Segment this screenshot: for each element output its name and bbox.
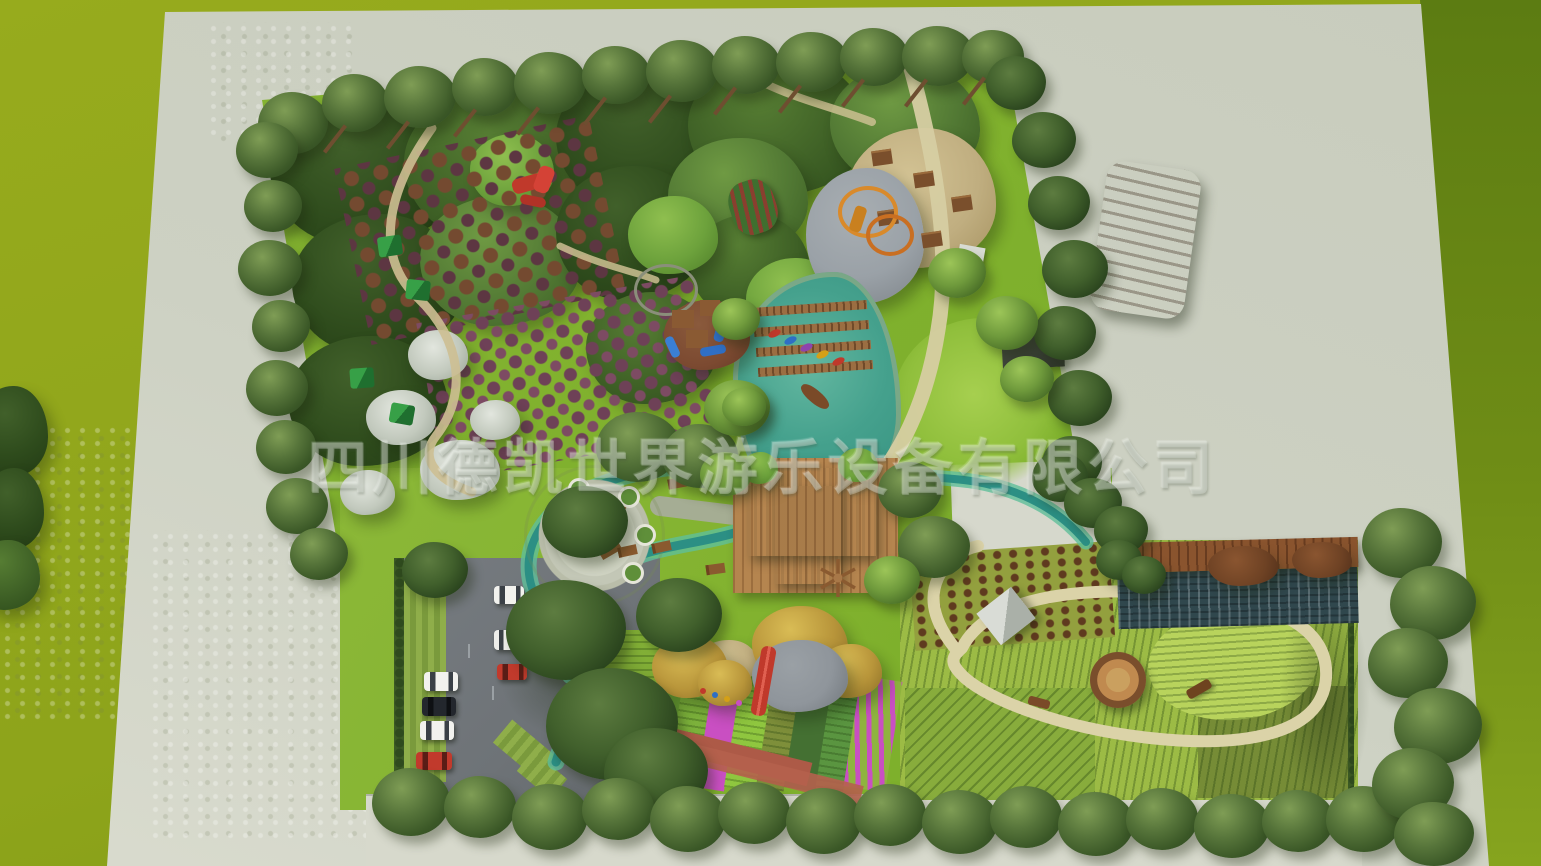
picnic-table [951, 195, 973, 213]
street-lamp [468, 644, 470, 658]
tree [452, 58, 518, 116]
tree [372, 768, 450, 836]
tree [1012, 112, 1076, 168]
tree [290, 528, 348, 580]
tree [786, 788, 862, 854]
round-gazebo [1090, 652, 1146, 708]
tree [718, 782, 790, 844]
tree [1048, 370, 1112, 426]
car-red [416, 752, 452, 770]
camp-tent [405, 279, 431, 301]
car-white [424, 672, 458, 691]
tree [1028, 176, 1090, 230]
tree [1000, 356, 1054, 402]
tree [402, 542, 468, 598]
car-red [497, 664, 527, 680]
climbing-net-arc [866, 214, 914, 256]
tree [322, 74, 388, 132]
car-black [422, 697, 456, 716]
bunting-dot [724, 696, 730, 702]
tree [246, 360, 308, 416]
tree [582, 46, 650, 104]
autumn-canopy [1208, 546, 1278, 586]
picnic-table [913, 171, 935, 189]
tree [1262, 790, 1334, 852]
tree [444, 776, 516, 838]
tree [384, 66, 456, 128]
tree [1058, 792, 1134, 856]
picnic-table [871, 149, 893, 167]
tree [650, 786, 726, 852]
tree [244, 180, 302, 232]
tree [1126, 788, 1198, 850]
tree [928, 248, 986, 298]
autumn-canopy [1292, 542, 1352, 578]
tree [582, 778, 654, 840]
tree [236, 122, 298, 178]
bunting-dot [736, 700, 742, 706]
tree [252, 300, 310, 352]
tree [986, 56, 1046, 110]
tree [238, 240, 302, 296]
aerial-park-render: 四川德凯世界游乐设备有限公司 [0, 0, 1541, 866]
tree [864, 556, 920, 604]
car-white [420, 721, 454, 740]
tree [506, 580, 626, 680]
tree [512, 784, 588, 850]
plaza-link-path [660, 506, 742, 516]
watermark-text: 四川德凯世界游乐设备有限公司 [308, 420, 1268, 507]
tree [840, 28, 908, 86]
plaza-planter [622, 562, 644, 584]
tree [990, 786, 1062, 848]
tree [712, 36, 780, 94]
tree [636, 578, 722, 652]
tree [256, 420, 316, 474]
picnic-table [921, 231, 943, 249]
playset-platform [672, 310, 694, 328]
tree [646, 40, 718, 102]
tree [1122, 556, 1166, 594]
tree [1194, 794, 1270, 858]
camp-tent [377, 234, 404, 257]
playset-platform [686, 330, 708, 348]
street-lamp [492, 686, 494, 700]
tree [1034, 306, 1096, 360]
tree [922, 790, 998, 854]
tree [976, 296, 1038, 350]
windmill-feature [816, 556, 860, 600]
camp-tent [349, 367, 374, 389]
rope-ring-feature [634, 264, 698, 316]
tree [712, 298, 760, 340]
bunting-dot [712, 692, 718, 698]
bunting-dot [700, 688, 706, 694]
windmill-hub [834, 574, 843, 583]
tree [514, 52, 586, 114]
tree [776, 32, 848, 92]
tree [854, 784, 926, 846]
tree [1042, 240, 1108, 298]
tree [1394, 802, 1474, 866]
